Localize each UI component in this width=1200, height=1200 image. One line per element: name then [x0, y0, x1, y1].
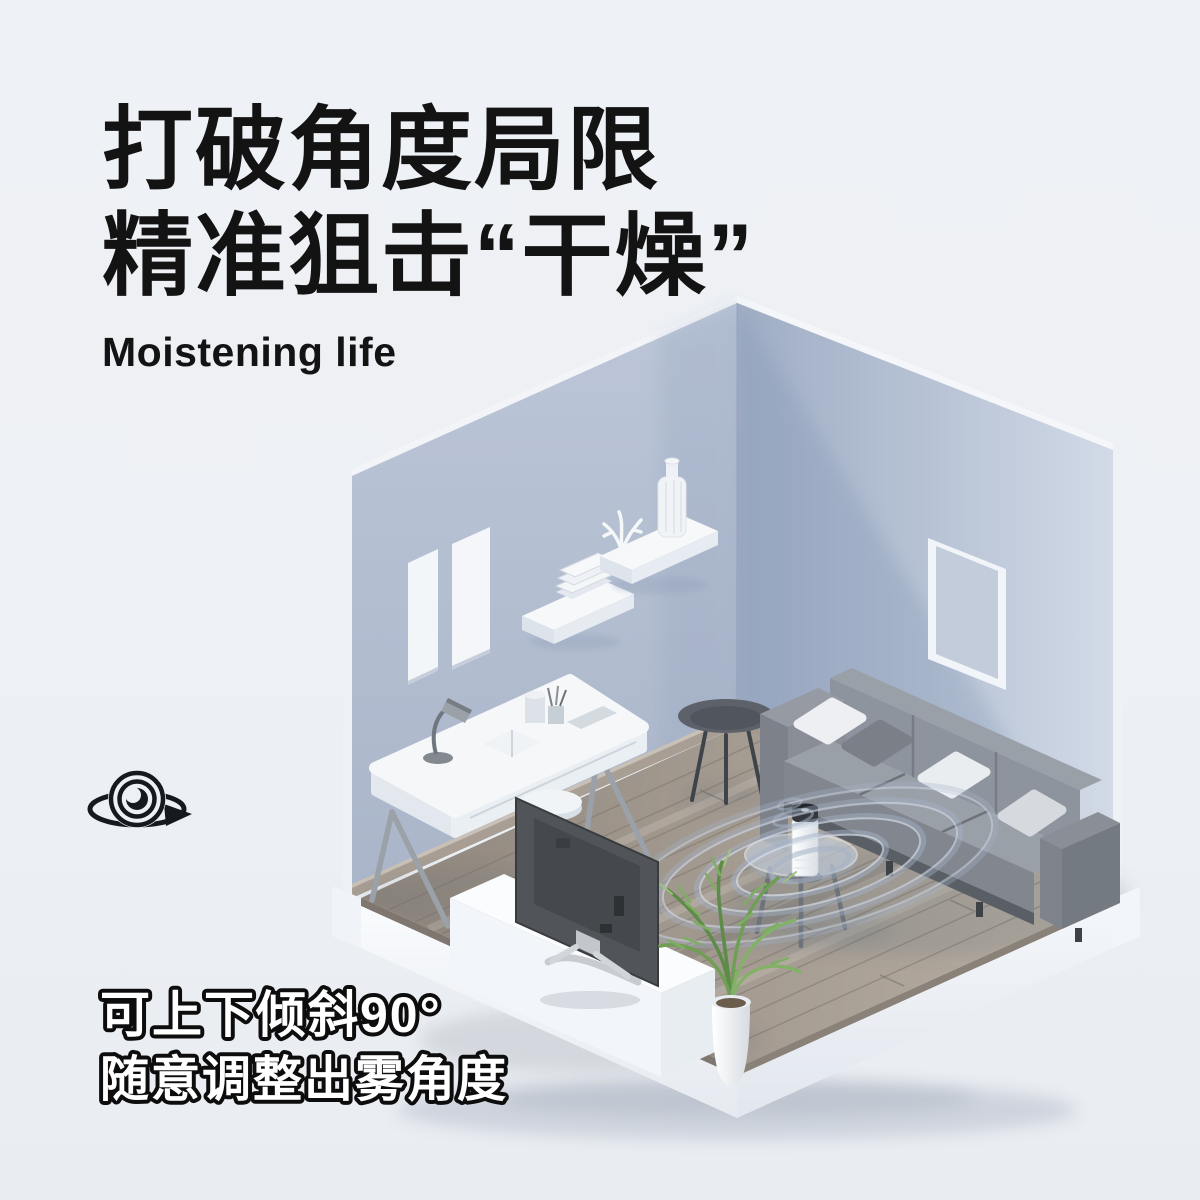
picture-frame-left-1: [408, 549, 438, 685]
caption-line-1: 可上下倾斜90°: [100, 987, 442, 1043]
title-line-1: 打破角度局限: [102, 100, 660, 201]
rotate-360-icon: [90, 770, 192, 828]
poster-canvas: 可上下倾斜90° 随意调整出雾角度 打破角度局限 精准狙击“干燥” Moiste…: [0, 0, 1200, 1200]
caption-line-2: 随意调整出雾角度: [100, 1053, 508, 1107]
page-title: 打破角度局限 精准狙击“干燥”: [102, 98, 755, 311]
subtitle: Moistening life: [102, 329, 755, 376]
headline: 打破角度局限 精准狙击“干燥” Moistening life: [102, 98, 755, 376]
title-line-2: 精准狙击“干燥”: [102, 206, 755, 307]
picture-frame-left-2: [452, 527, 490, 670]
